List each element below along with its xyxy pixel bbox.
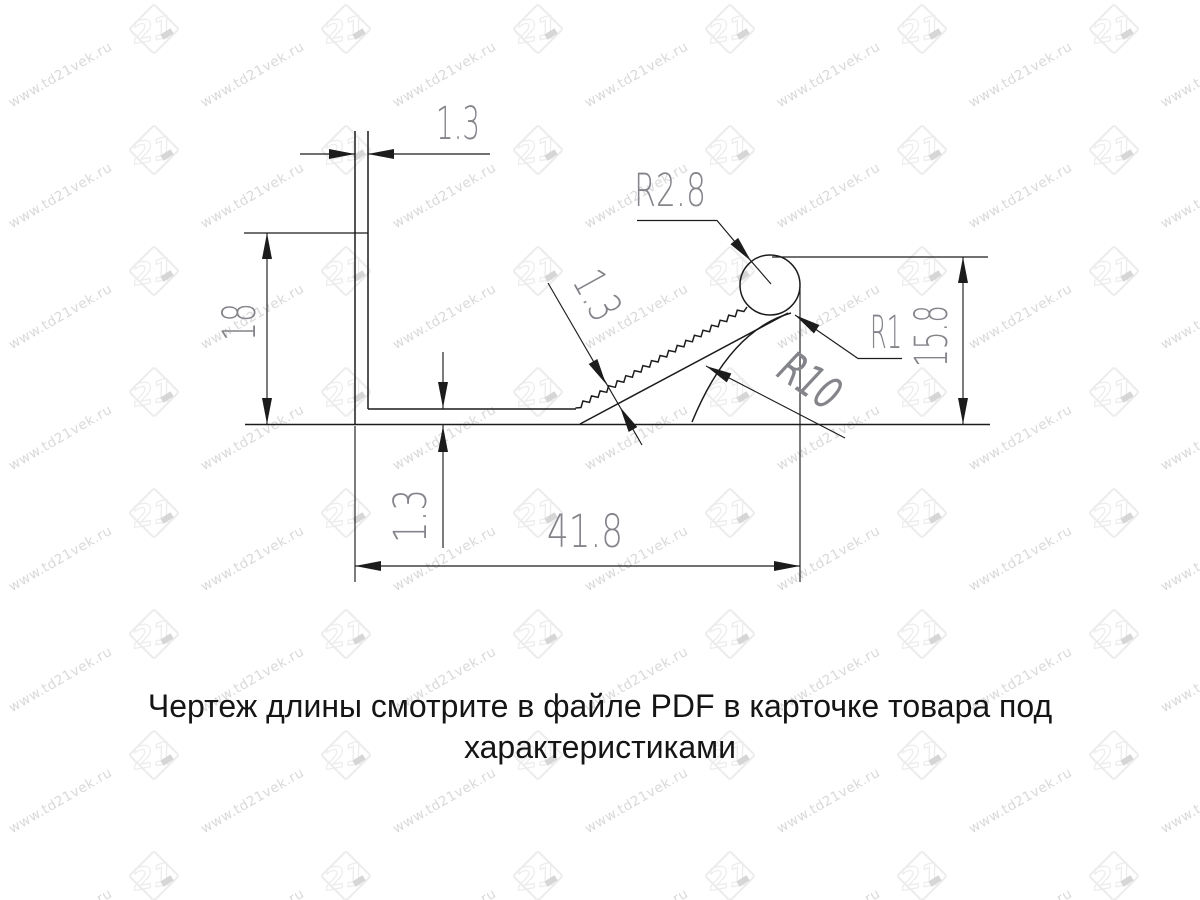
dim-base-thickness: 1.3 bbox=[384, 352, 443, 548]
arrowhead bbox=[616, 405, 638, 433]
dim-value: 1.3 bbox=[384, 489, 437, 543]
leader-line bbox=[637, 221, 771, 285]
arrowhead bbox=[438, 382, 448, 408]
caption: Чертеж длины смотрите в файле PDF в карт… bbox=[0, 686, 1200, 768]
callout-underside-radius: R10 bbox=[706, 341, 851, 438]
callout-bulb-radius: R2.8 bbox=[634, 164, 771, 284]
bulb-circle bbox=[740, 255, 800, 315]
dim-value: R10 bbox=[768, 341, 851, 421]
dim-value: 18 bbox=[213, 303, 266, 341]
caption-line1: Чертеж длины смотрите в файле PDF в карт… bbox=[0, 686, 1200, 727]
dim-left-height: 18 bbox=[213, 233, 368, 424]
arrowhead bbox=[704, 362, 732, 383]
arrowhead bbox=[355, 561, 381, 571]
arrowhead bbox=[958, 398, 968, 424]
drawing-page: 21www.td21vek.ru21www.td21vek.ru21www.td… bbox=[0, 0, 1200, 900]
arrowhead bbox=[329, 149, 355, 159]
underside-fillet-curve bbox=[692, 313, 791, 422]
arrowhead bbox=[262, 398, 272, 424]
arrowhead bbox=[262, 233, 272, 259]
caption-line2: характеристиками bbox=[0, 727, 1200, 768]
dim-value: 15.8 bbox=[905, 305, 958, 367]
arrowhead bbox=[730, 238, 754, 264]
arrowhead bbox=[368, 149, 394, 159]
dim-value: 1.3 bbox=[562, 261, 633, 330]
dim-value: 41.8 bbox=[547, 505, 623, 558]
arrowhead bbox=[958, 257, 968, 283]
arrowhead bbox=[792, 311, 819, 334]
arrowhead bbox=[774, 561, 800, 571]
dim-wall-thickness-top: 1.3 bbox=[300, 97, 490, 154]
fin-serrated-edge bbox=[576, 307, 748, 408]
arrowhead bbox=[438, 426, 448, 452]
dim-value: R2.8 bbox=[634, 164, 706, 217]
dim-value: R1 bbox=[870, 306, 902, 359]
arrowhead bbox=[589, 359, 611, 387]
dim-value: 1.3 bbox=[436, 97, 480, 150]
